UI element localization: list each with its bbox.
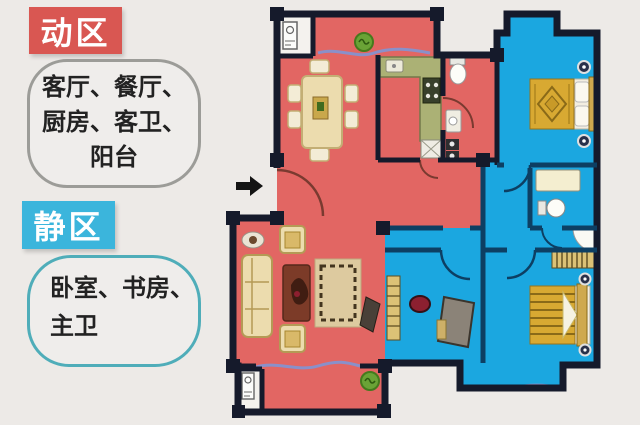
- active-zone-label: 动区: [29, 7, 122, 54]
- nightstand-icon: [580, 345, 591, 356]
- desk-chair-icon: [410, 296, 430, 312]
- quiet-zone-rooms-line: 卧室、书房、: [50, 270, 198, 308]
- active-zone-rooms-line: 客厅、餐厅、: [30, 70, 198, 105]
- side-table-icon: [242, 232, 264, 248]
- quiet-zone-label: 静区: [22, 201, 115, 249]
- double-bed-icon: [530, 284, 590, 346]
- toilet-icon: [450, 58, 466, 84]
- nightstand-icon: [578, 61, 590, 73]
- fridge-icon: [421, 140, 441, 158]
- entry-arrow-icon: [236, 176, 263, 196]
- active-zone-rooms-line: 厨房、客卫、: [30, 105, 198, 140]
- active-zone-rooms-line: 阳台: [30, 140, 198, 175]
- nightstand-icon: [580, 274, 591, 285]
- armchair-icon: [280, 325, 305, 352]
- double-bed-icon: [530, 77, 595, 131]
- entry-hall: [277, 160, 483, 228]
- quiet-zone-bubble: 卧室、书房、 主卫: [27, 255, 201, 367]
- active-zone-bubble: 客厅、餐厅、 厨房、客卫、 阳台: [27, 59, 201, 188]
- stove-icon: [423, 78, 440, 103]
- sofa-icon: [242, 255, 272, 337]
- active-zone-label-text: 动区: [40, 8, 110, 54]
- legend-panel: 动区 客厅、餐厅、 厨房、客卫、 阳台 静区 卧室、书房、 主卫: [0, 0, 230, 425]
- plant-icon: [355, 33, 373, 51]
- plant-icon: [361, 372, 379, 390]
- quiet-zone-label-text: 静区: [33, 202, 103, 248]
- toilet-icon: [538, 199, 565, 217]
- armchair-icon: [280, 226, 305, 253]
- bookshelf-icon: [387, 276, 400, 340]
- vanity-icon: [446, 110, 461, 132]
- nightstand-icon: [578, 135, 590, 147]
- washing-machine-icon: [283, 22, 297, 49]
- south-bay-window: [460, 363, 563, 388]
- wardrobe-icon: [552, 251, 595, 268]
- side-cabinet-icon: [437, 320, 446, 339]
- coffee-table-icon: [283, 265, 310, 321]
- rug-icon: [315, 259, 361, 327]
- vanity-icon: [536, 170, 580, 191]
- quiet-zone-rooms-line: 主卫: [50, 308, 198, 346]
- utility-sink-icon: [242, 373, 254, 399]
